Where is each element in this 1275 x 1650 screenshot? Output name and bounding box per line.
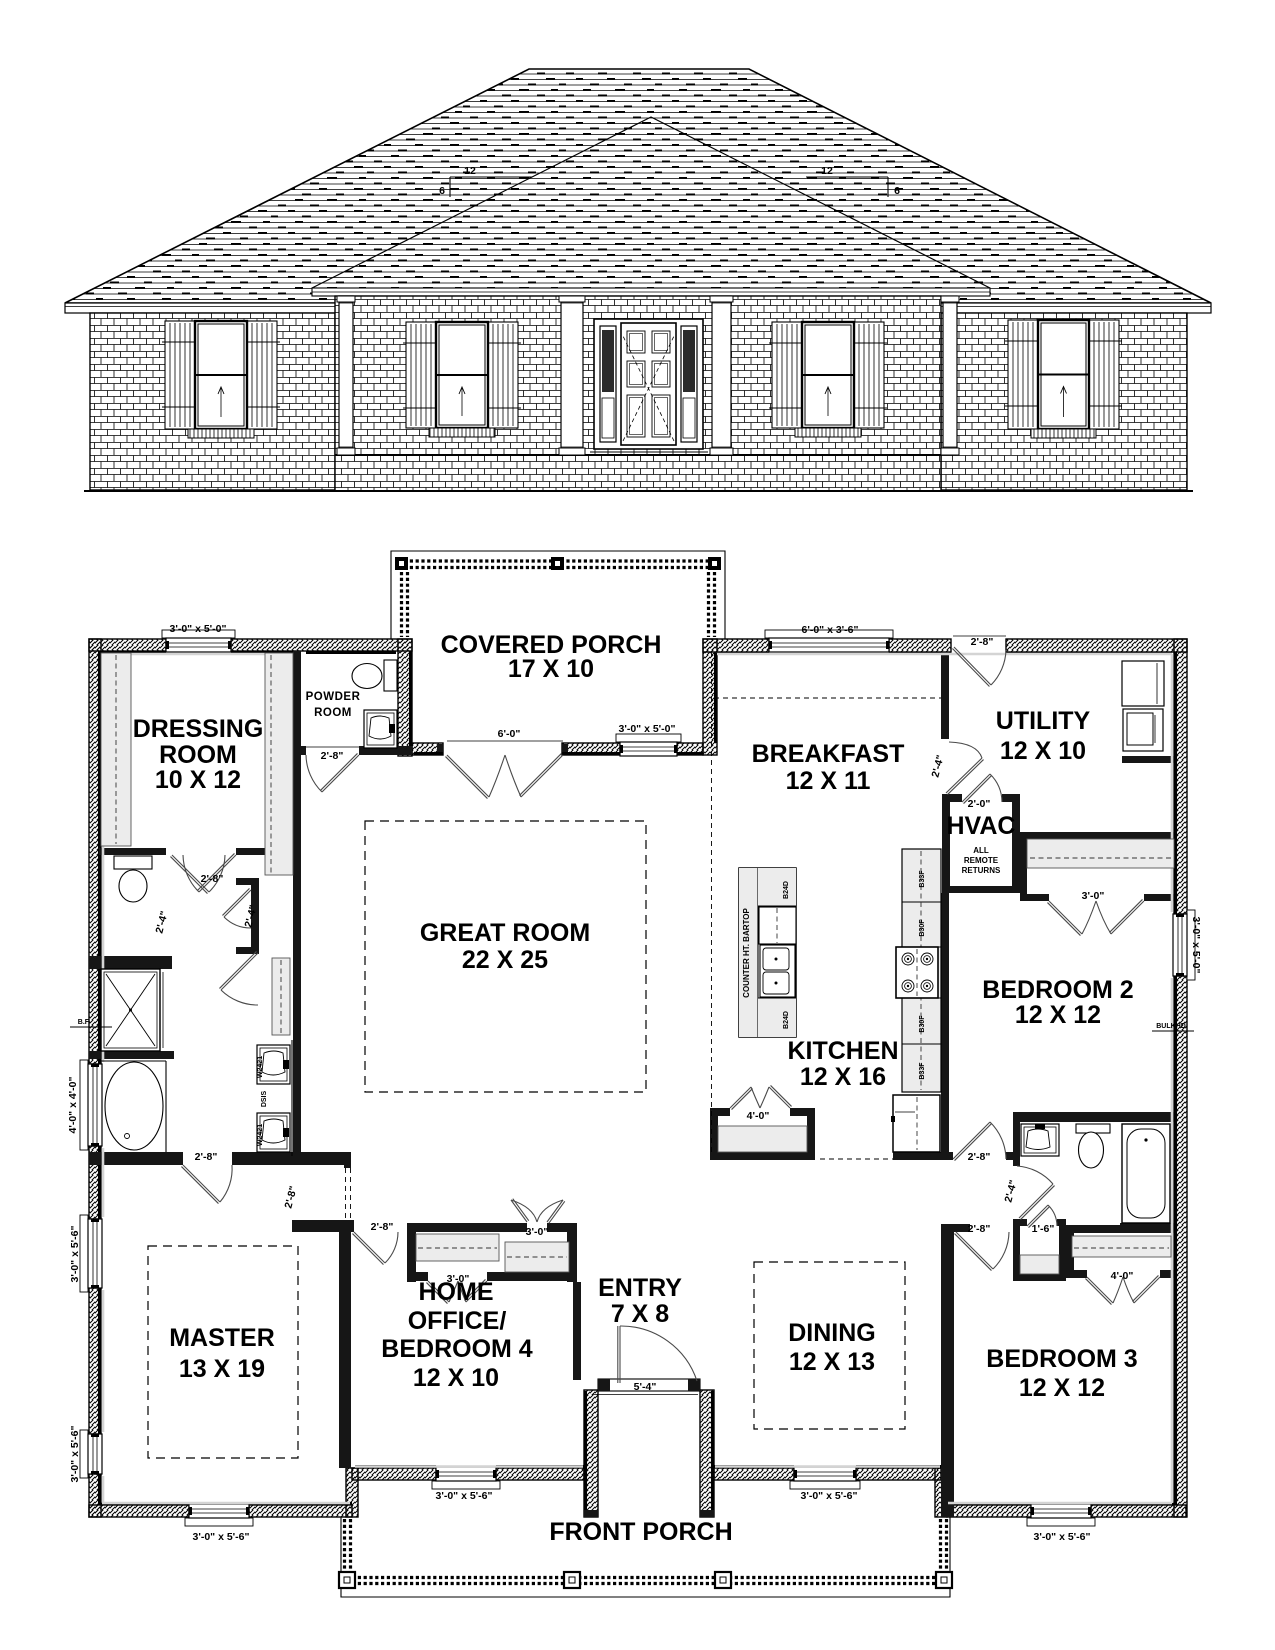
svg-text:B30F: B30F xyxy=(919,919,926,937)
svg-text:GREAT ROOM: GREAT ROOM xyxy=(420,919,590,947)
svg-text:17 X 10: 17 X 10 xyxy=(508,655,594,683)
svg-text:B24D: B24D xyxy=(783,881,790,899)
svg-text:13 X 19: 13 X 19 xyxy=(179,1355,265,1383)
svg-text:1'-6": 1'-6" xyxy=(1032,1223,1055,1235)
svg-text:2'-8": 2'-8" xyxy=(371,1221,394,1233)
svg-text:BEDROOM 4: BEDROOM 4 xyxy=(381,1335,533,1363)
svg-text:6: 6 xyxy=(894,185,900,197)
svg-text:HVAC: HVAC xyxy=(947,812,1016,840)
svg-text:4'-0": 4'-0" xyxy=(1111,1270,1134,1282)
svg-text:BULKHD.: BULKHD. xyxy=(1156,1023,1188,1030)
svg-text:DINING: DINING xyxy=(788,1319,876,1347)
svg-text:12 X 13: 12 X 13 xyxy=(789,1348,875,1376)
svg-text:BEDROOM 3: BEDROOM 3 xyxy=(986,1345,1137,1373)
svg-text:KITCHEN: KITCHEN xyxy=(787,1037,898,1065)
svg-text:3'-0" x 5'-0": 3'-0" x 5'-0" xyxy=(1190,917,1202,974)
svg-text:DRESSING: DRESSING xyxy=(133,715,264,743)
svg-text:MASTER: MASTER xyxy=(169,1324,275,1352)
svg-text:ALL: ALL xyxy=(973,846,989,855)
svg-text:3'-0" x 5'-6": 3'-0" x 5'-6" xyxy=(436,1490,493,1502)
svg-text:3'-0" x 5'-6": 3'-0" x 5'-6" xyxy=(193,1531,250,1543)
svg-text:B30F: B30F xyxy=(919,1015,926,1033)
svg-text:3'-0": 3'-0" xyxy=(447,1273,470,1285)
svg-text:ENTRY: ENTRY xyxy=(598,1274,682,1302)
svg-text:12: 12 xyxy=(821,165,833,177)
svg-text:2'-0": 2'-0" xyxy=(968,798,991,810)
svg-text:W2421: W2421 xyxy=(257,1056,264,1078)
svg-text:12 X 11: 12 X 11 xyxy=(786,767,871,795)
svg-text:W2421: W2421 xyxy=(257,1124,264,1146)
svg-text:BREAKFAST: BREAKFAST xyxy=(752,740,905,768)
svg-text:12 X 10: 12 X 10 xyxy=(1000,737,1086,765)
svg-text:3'-0" x 5'-6": 3'-0" x 5'-6" xyxy=(69,1225,81,1282)
svg-text:DSIS: DSIS xyxy=(261,1091,268,1108)
svg-text:REMOTE: REMOTE xyxy=(964,856,999,865)
svg-text:2'-8": 2'-8" xyxy=(201,873,224,885)
svg-text:COUNTER HT. BARTOP: COUNTER HT. BARTOP xyxy=(742,908,751,998)
svg-text:B33F: B33F xyxy=(919,870,926,888)
svg-text:ROOM: ROOM xyxy=(159,741,237,769)
svg-text:3'-0" x 5'-6": 3'-0" x 5'-6" xyxy=(69,1425,81,1482)
svg-text:UTILITY: UTILITY xyxy=(996,707,1091,735)
svg-text:10 X 12: 10 X 12 xyxy=(155,766,241,794)
svg-text:OFFICE/: OFFICE/ xyxy=(408,1307,507,1335)
svg-text:ROOM: ROOM xyxy=(314,707,352,719)
svg-text:2'-8": 2'-8" xyxy=(968,1151,991,1163)
svg-text:12 X 10: 12 X 10 xyxy=(413,1364,499,1392)
svg-text:B33F: B33F xyxy=(919,1062,926,1080)
svg-text:B24D: B24D xyxy=(783,1011,790,1029)
svg-text:12 X 16: 12 X 16 xyxy=(800,1063,886,1091)
svg-text:6'-0": 6'-0" xyxy=(498,728,521,740)
svg-text:6: 6 xyxy=(439,185,445,197)
svg-text:RETURNS: RETURNS xyxy=(962,866,1001,875)
svg-text:6'-0" x 3'-6": 6'-0" x 3'-6" xyxy=(802,624,859,636)
svg-text:2'-8": 2'-8" xyxy=(971,636,994,648)
svg-text:2'-8": 2'-8" xyxy=(321,750,344,762)
svg-text:3'-0": 3'-0" xyxy=(1082,890,1105,902)
svg-text:22 X 25: 22 X 25 xyxy=(462,946,548,974)
svg-text:BEDROOM 2: BEDROOM 2 xyxy=(982,976,1133,1004)
svg-text:3'-0" x 5'-6": 3'-0" x 5'-6" xyxy=(801,1490,858,1502)
svg-text:POWDER: POWDER xyxy=(306,691,361,703)
svg-text:2'-8": 2'-8" xyxy=(195,1151,218,1163)
svg-text:7 X 8: 7 X 8 xyxy=(611,1300,669,1328)
svg-text:4'-0" x 4'-0": 4'-0" x 4'-0" xyxy=(67,1076,79,1133)
svg-text:5'-4": 5'-4" xyxy=(634,1381,657,1393)
svg-text:FRONT PORCH: FRONT PORCH xyxy=(549,1518,732,1546)
svg-text:12: 12 xyxy=(464,165,476,177)
svg-text:B.F.: B.F. xyxy=(78,1019,91,1026)
svg-text:4'-0": 4'-0" xyxy=(747,1110,770,1122)
svg-text:3'-0": 3'-0" xyxy=(526,1226,549,1238)
svg-text:2'-8": 2'-8" xyxy=(968,1223,991,1235)
svg-text:12 X 12: 12 X 12 xyxy=(1015,1001,1101,1029)
svg-text:3'-0" x 5'-6": 3'-0" x 5'-6" xyxy=(1034,1531,1091,1543)
svg-text:3'-0" x 5'-0": 3'-0" x 5'-0" xyxy=(619,723,676,735)
svg-text:3'-0" x 5'-0": 3'-0" x 5'-0" xyxy=(170,623,227,635)
svg-text:12 X 12: 12 X 12 xyxy=(1019,1374,1105,1402)
